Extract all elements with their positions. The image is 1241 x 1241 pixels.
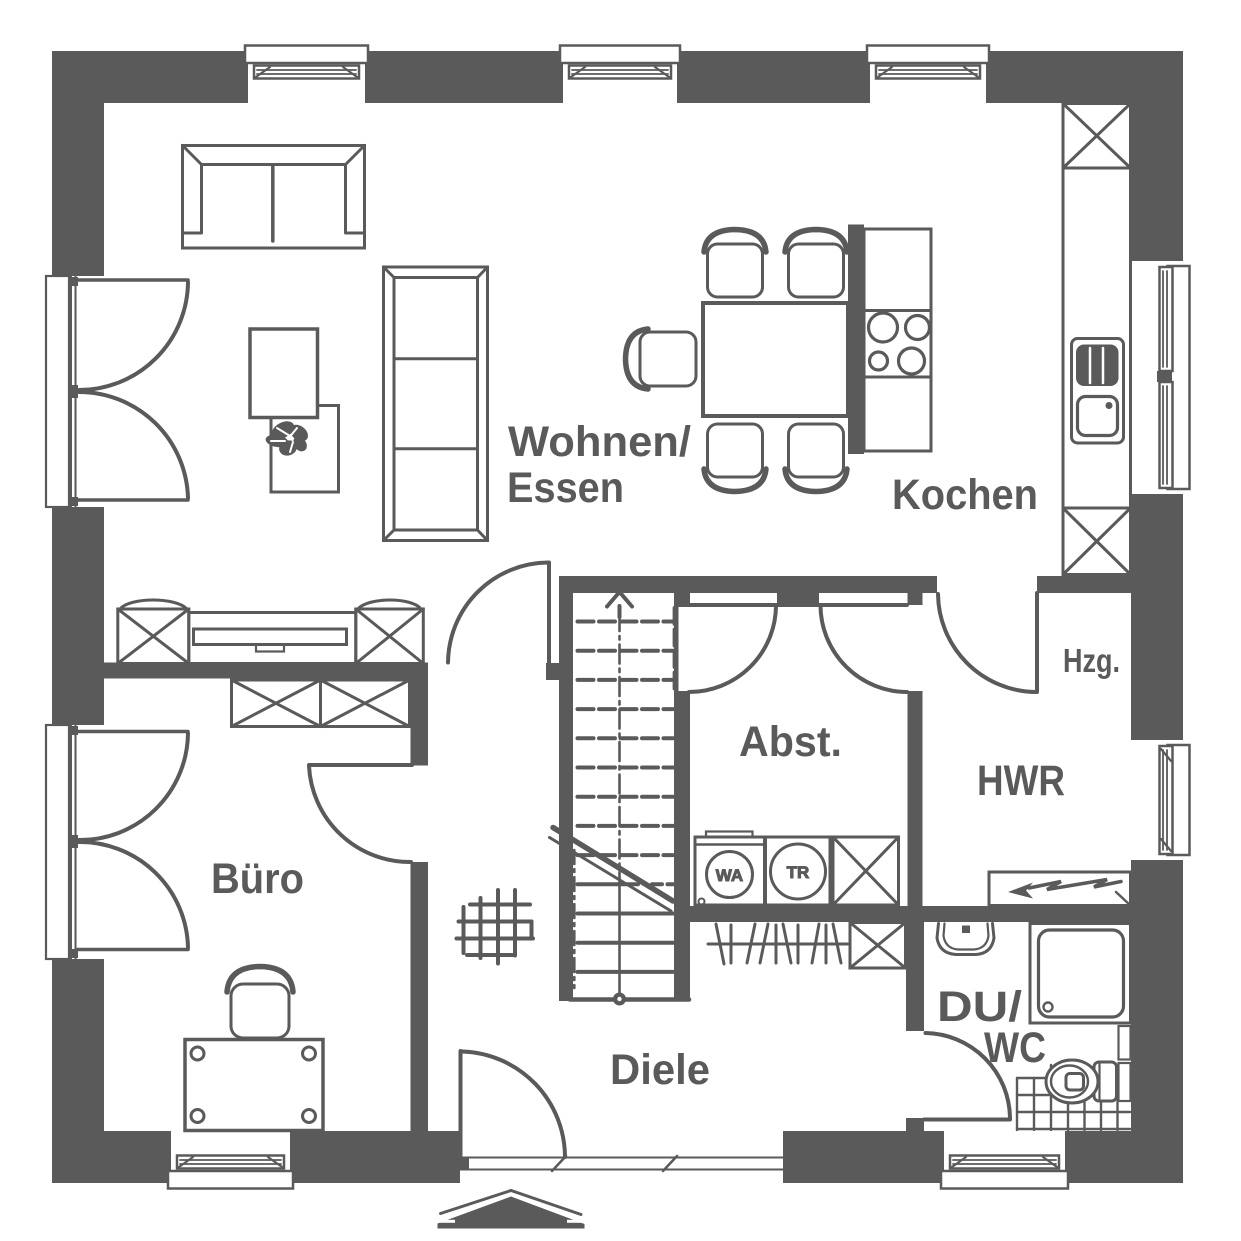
svg-text:TR: TR (787, 863, 810, 882)
svg-text:Wohnen/: Wohnen/ (508, 418, 691, 466)
svg-text:Abst.: Abst. (739, 718, 842, 766)
svg-text:WC: WC (984, 1024, 1046, 1072)
svg-text:HWR: HWR (977, 757, 1065, 805)
svg-text:Kochen: Kochen (892, 471, 1038, 519)
svg-text:Hzg.: Hzg. (1063, 642, 1120, 679)
svg-text:Büro: Büro (211, 855, 304, 903)
svg-text:Essen: Essen (507, 464, 624, 512)
svg-text:Diele: Diele (610, 1046, 710, 1094)
svg-text:WA: WA (716, 866, 743, 885)
